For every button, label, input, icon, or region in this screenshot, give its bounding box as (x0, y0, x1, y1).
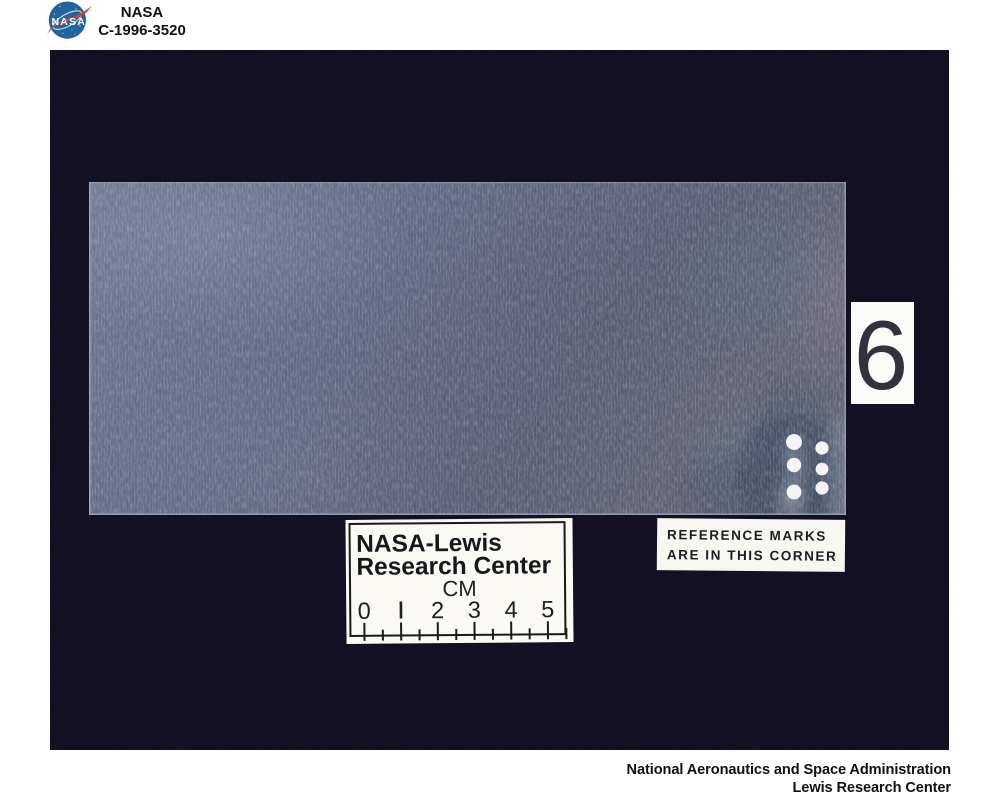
svg-text:3: 3 (468, 597, 481, 623)
svg-text:5: 5 (541, 596, 554, 622)
svg-text:4: 4 (504, 596, 517, 622)
svg-text:0: 0 (358, 598, 371, 624)
svg-text:2: 2 (431, 597, 444, 623)
svg-text:NASA: NASA (52, 16, 87, 28)
